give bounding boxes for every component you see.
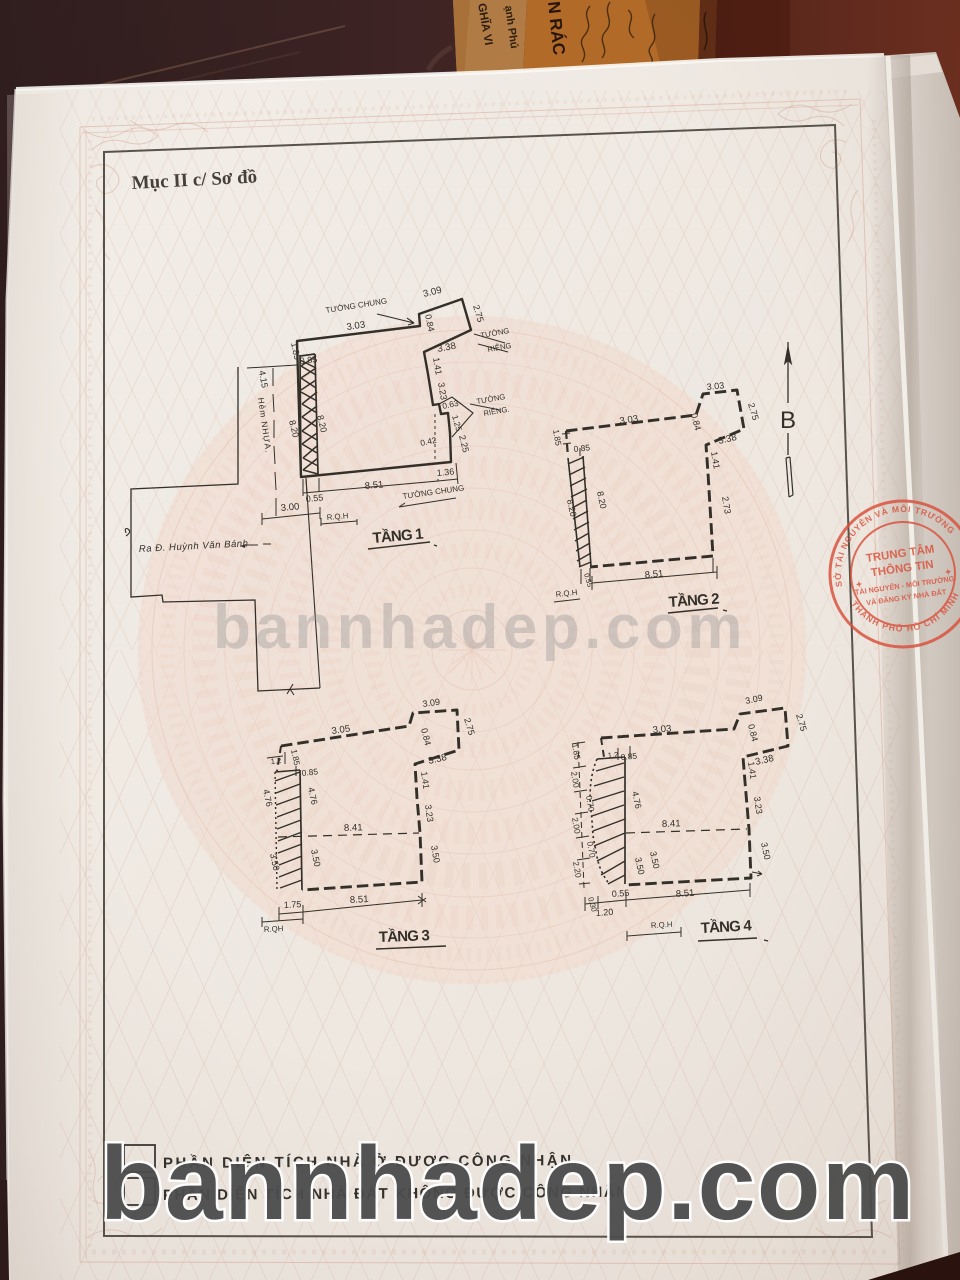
svg-text:8.41: 8.41 (662, 818, 681, 830)
svg-text:0.85: 0.85 (301, 766, 319, 778)
svg-text:8.51: 8.51 (364, 479, 384, 492)
svg-text:1.36: 1.36 (436, 467, 454, 478)
svg-text:bannhadep.com: bannhadep.com (213, 593, 747, 662)
svg-text:bannhadep.com: bannhadep.com (100, 1126, 916, 1242)
svg-text:0.85: 0.85 (299, 354, 317, 366)
svg-text:3.03: 3.03 (652, 723, 672, 736)
svg-text:TẦNG 3: TẦNG 3 (379, 927, 430, 946)
svg-text:R.Q.H: R.Q.H (326, 511, 348, 522)
svg-text:8.51: 8.51 (675, 888, 694, 900)
svg-text:8.51: 8.51 (350, 894, 369, 906)
svg-text:R.Q.H: R.Q.H (651, 920, 673, 930)
svg-text:3.03: 3.03 (706, 380, 724, 392)
svg-text:1.75: 1.75 (284, 899, 302, 910)
svg-text:TẦNG 4: TẦNG 4 (700, 917, 752, 937)
svg-text:0.85: 0.85 (573, 442, 591, 454)
svg-text:0.85: 0.85 (620, 751, 637, 762)
svg-text:8.51: 8.51 (644, 568, 664, 581)
svg-text:8.41: 8.41 (344, 822, 363, 834)
svg-text:B: B (780, 407, 796, 434)
svg-text:3.00: 3.00 (280, 501, 300, 514)
svg-text:0.55: 0.55 (611, 888, 629, 899)
svg-text:1.2: 1.2 (607, 750, 618, 760)
svg-text:R.QH: R.QH (264, 924, 284, 934)
svg-text:1.20: 1.20 (595, 907, 613, 918)
